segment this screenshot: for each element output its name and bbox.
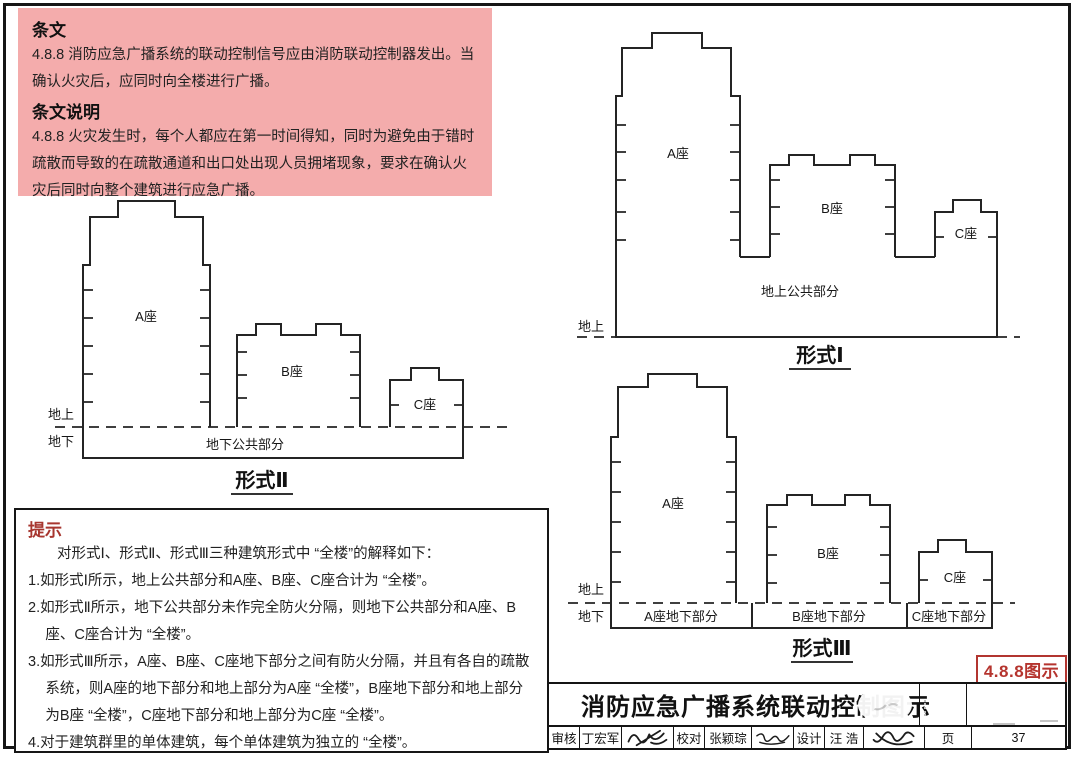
title-block-empty-cell-wide [967,684,1065,725]
clause-box: 条文 4.8.8 消防应急广播系统的联动控制信号应由消防联动控制器发出。当确认火… [18,8,492,196]
form3-below-ground-label: 地下 [578,609,604,624]
reviewer-label: 审核 [549,727,580,748]
form2-above-ground-label: 地上 [48,407,74,422]
form1-tower-b-label: B座 [821,201,843,216]
title-block-top-row: 消防应急广播系统联动控制图示 [549,684,1065,727]
form2-tower-b-label: B座 [281,364,303,379]
form3-tower-a-outline [611,374,736,603]
checker-label: 校对 [674,727,705,748]
clause-explanation-text: 4.8.8 火灾发生时，每个人都应在第一时间得知，同时为避免由于错时疏散而导致的… [32,124,480,205]
form2-tower-a-label: A座 [135,309,157,324]
form3-basement-a-label: A座地下部分 [644,609,718,624]
form2-tower-a-floor-ticks [83,290,210,402]
diagram-form1: A座 B座 C座 地上公共部分 地上 形式Ⅰ [560,25,1040,370]
watermark-smudge [858,687,912,723]
tips-box: 提示 对形式Ⅰ、形式Ⅱ、形式Ⅲ三种建筑形式中 “全楼”的解释如下： 1.如形式Ⅰ… [14,508,549,753]
figure-tag: 4.8.8图示 [976,655,1067,684]
atlas-page: 条文 4.8.8 消防应急广播系统的联动控制信号应由消防联动控制器发出。当确认火… [0,0,1080,761]
tips-item-4: 4.对于建筑群里的单体建筑，每个单体建筑为独立的 “全楼”。 [28,730,537,757]
page-number: 37 [972,727,1065,748]
form3-tower-a-label: A座 [662,496,684,511]
designer-name: 汪 浩 [825,727,864,748]
form3-basement-c-label: C座地下部分 [912,609,986,624]
watermark-smudge-mark [886,703,900,714]
designer-signature [864,727,925,748]
form2-podium-label: 地下公共部分 [206,437,284,452]
reviewer-name: 丁宏军 [580,727,622,748]
form1-podium-label: 地上公共部分 [761,284,839,299]
clause-text: 4.8.8 消防应急广播系统的联动控制信号应由消防联动控制器发出。当确认火灾后，… [32,42,480,96]
title-block-staff-row: 审核 丁宏军 校对 张颖琮 设计 汪 浩 页 37 [549,727,1065,748]
title-block: 消防应急广播系统联动控制图示 审核 丁宏军 校对 张颖琮 设计 汪 浩 [547,682,1067,750]
form3-tower-a-floor-ticks [611,462,736,582]
watermark-remnant-dash [1040,720,1058,722]
reviewer-signature-scribble [624,728,671,748]
title-block-empty-cell-narrow [920,684,967,725]
checker-signature-scribble [754,728,792,748]
clause-heading: 条文 [32,16,480,41]
tips-intro: 对形式Ⅰ、形式Ⅱ、形式Ⅲ三种建筑形式中 “全楼”的解释如下： [28,541,537,568]
form1-tower-a-label: A座 [667,146,689,161]
form1-tower-c-label: C座 [955,226,977,241]
clause-explanation-heading: 条文说明 [32,98,480,123]
checker-name: 张颖琮 [705,727,752,748]
form2-below-ground-label: 地下 [48,434,74,449]
watermark-remnant-dash [993,723,1015,725]
reviewer-signature [622,727,674,748]
form2-tower-c-label: C座 [414,397,436,412]
form3-caption: 形式Ⅲ [793,637,852,660]
diagram-form3: A座 B座 C座 A座地下部分 B座地下部分 C座地下部分 地上 地下 形式Ⅲ [560,370,1040,668]
page-label: 页 [925,727,972,748]
tips-heading: 提示 [28,516,537,541]
form1-above-ground-label: 地上 [578,319,604,334]
designer-signature-scribble [866,728,921,748]
form1-tower-a-outline [616,33,740,257]
form1-tower-a-floor-ticks [616,125,740,240]
tips-item-1: 1.如形式Ⅰ所示，地上公共部分和A座、B座、C座合计为 “全楼”。 [28,568,537,595]
form3-tower-c-label: C座 [944,570,966,585]
watermark-remnant-dots [924,700,926,716]
tips-item-2: 2.如形式Ⅱ所示，地下公共部分未作完全防火分隔，则地下公共部分和A座、B座、C座… [28,595,537,649]
designer-label: 设计 [794,727,825,748]
form3-above-ground-label: 地上 [578,582,604,597]
checker-signature [752,727,794,748]
tips-item-3: 3.如形式Ⅲ所示，A座、B座、C座地下部分之间有防火分隔，并且有各自的疏散系统，… [28,649,537,730]
form1-caption: 形式Ⅰ [796,344,843,367]
diagram-form2: A座 B座 C座 地下公共部分 地上 地下 形式Ⅱ [40,195,545,500]
form2-caption: 形式Ⅱ [235,469,288,492]
form3-tower-b-label: B座 [817,546,839,561]
form3-basement-b-label: B座地下部分 [792,609,866,624]
